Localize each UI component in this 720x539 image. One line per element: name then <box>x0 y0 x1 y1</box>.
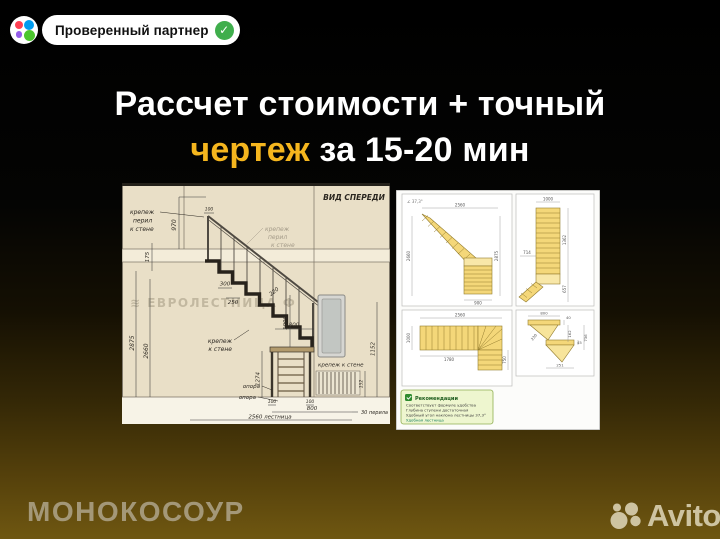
dim-post-offset: 100 <box>205 207 214 213</box>
br-dim-6: 45 <box>577 340 582 345</box>
br-dim-3: 162 <box>567 330 572 338</box>
label-wall-fix-left-1: крепеж <box>208 338 233 345</box>
plan-svg: ∠ 37,3° 2560 2660 2875 <box>396 190 600 430</box>
label-rail-wall-mid-1: крепеж <box>265 226 290 233</box>
stair-plan-sheet: ∠ 37,3° 2560 2660 2875 <box>396 190 600 430</box>
headline-line1: Рассчет стоимости + точный <box>115 85 606 123</box>
br-dim-top: 800 <box>540 311 548 316</box>
tl-dim-right: 2875 <box>494 250 499 261</box>
verified-check-icon: ✓ <box>215 21 234 40</box>
headline-highlight: чертеж <box>190 131 309 169</box>
headline-rest: за 15-20 мин <box>310 131 530 169</box>
bl-dim-right: 750 <box>502 356 507 364</box>
avito-logo: Avito <box>610 498 720 534</box>
tr-dim-left: 714 <box>523 250 531 255</box>
view-bottom-left: 2560 1000 1780 750 <box>402 310 512 386</box>
view-label: ВИД СПЕРЕДИ <box>323 193 385 202</box>
view-top-left: ∠ 37,3° 2560 2660 2875 <box>402 194 512 306</box>
dot-red-icon <box>15 21 23 29</box>
bl-dim-left: 1000 <box>406 332 411 343</box>
label-wall-fix-left-2: к стене <box>208 346 232 353</box>
avito-dots-mark <box>610 501 644 531</box>
recommendations-title: Рекомендации <box>415 396 458 402</box>
dim-slab: 175 <box>145 251 151 262</box>
badge-pill: Проверенный партнер ✓ <box>42 15 240 45</box>
verified-partner-badge: Проверенный партнер ✓ <box>10 15 240 45</box>
label-rail-wall-top-2: перил <box>133 218 152 225</box>
door <box>318 295 345 357</box>
headline: Рассчет стоимости + точный чертеж за 15-… <box>0 81 720 173</box>
view-top-right: 1000 714 1362 657 <box>516 194 594 306</box>
label-support-upper: опора <box>243 384 261 390</box>
dim-base-span: 800 <box>307 406 318 412</box>
tr-dim-right-lower: 657 <box>562 285 567 293</box>
brand-name: МОНОКОСОУР <box>27 496 245 528</box>
tr-dim-right-upper: 1362 <box>562 234 567 245</box>
floor-slab <box>122 249 390 262</box>
dot-purple-icon <box>16 31 23 38</box>
dim-rail-height: 970 <box>171 219 178 231</box>
label-rail-wall-top-3: к стене <box>130 226 154 233</box>
label-support-lower: опора <box>239 395 257 401</box>
tl-dim-bottom: 900 <box>474 301 482 306</box>
tl-dim-top: 2560 <box>455 203 466 208</box>
dot-green-icon <box>24 30 35 41</box>
radiator <box>316 371 360 395</box>
label-rail-wall-mid-3: к стене <box>271 242 295 249</box>
ceiling-line <box>122 183 390 186</box>
bl-dim-inner: 1780 <box>444 357 455 362</box>
angle-note: ∠ 37,3° <box>407 199 423 204</box>
br-dim-4: 736 <box>583 334 588 342</box>
dot-blue-icon <box>24 20 34 30</box>
label-total-note: 2560 лестница <box>248 415 292 421</box>
recommendations-box: Рекомендации Соответствует формуле удобс… <box>401 390 493 424</box>
br-dim-bottom: 251 <box>556 363 564 368</box>
tl-dim-left: 2660 <box>406 250 411 261</box>
dim-base-right: 100 <box>306 399 315 405</box>
avito-wordmark: Avito <box>647 498 720 534</box>
recommendations-icon <box>405 394 412 401</box>
label-rail-wall-top-1: крепеж <box>130 209 155 216</box>
bl-dim-top: 2560 <box>455 313 466 318</box>
elevation-svg: ≋ ЕВРОЛЕСТНИЦА Ф ВИД СПЕРЕДИ <box>122 183 390 424</box>
dim-total-height: 2875 <box>129 335 136 350</box>
br-dim-2: 40 <box>566 315 571 320</box>
label-railing-note: 30 перила <box>361 410 388 416</box>
dim-clear-height: 2660 <box>143 343 150 358</box>
dim-wall-height: 1152 <box>371 342 377 356</box>
dim-radiator: 152 <box>359 380 365 389</box>
view-bottom-right: 800 40 162 736 230 45 251 <box>516 310 594 376</box>
ad-canvas: Проверенный партнер ✓ Рассчет стоимости … <box>0 0 720 539</box>
badge-label: Проверенный партнер <box>55 23 209 38</box>
dim-door-gap: 800 <box>289 323 300 329</box>
avito-dots-icon <box>10 16 38 44</box>
dim-run: 250 <box>228 300 239 306</box>
tr-dim-top: 1000 <box>543 197 554 202</box>
recommendation-item: Удобная лестница <box>406 418 444 423</box>
stair-elevation-drawing: ≋ ЕВРОЛЕСТНИЦА Ф ВИД СПЕРЕДИ <box>122 183 390 424</box>
label-rail-wall-mid-2: перил <box>268 234 287 241</box>
dim-tread: 300 <box>220 282 231 288</box>
label-wall-fix-right: крепеж к стене <box>318 363 364 369</box>
